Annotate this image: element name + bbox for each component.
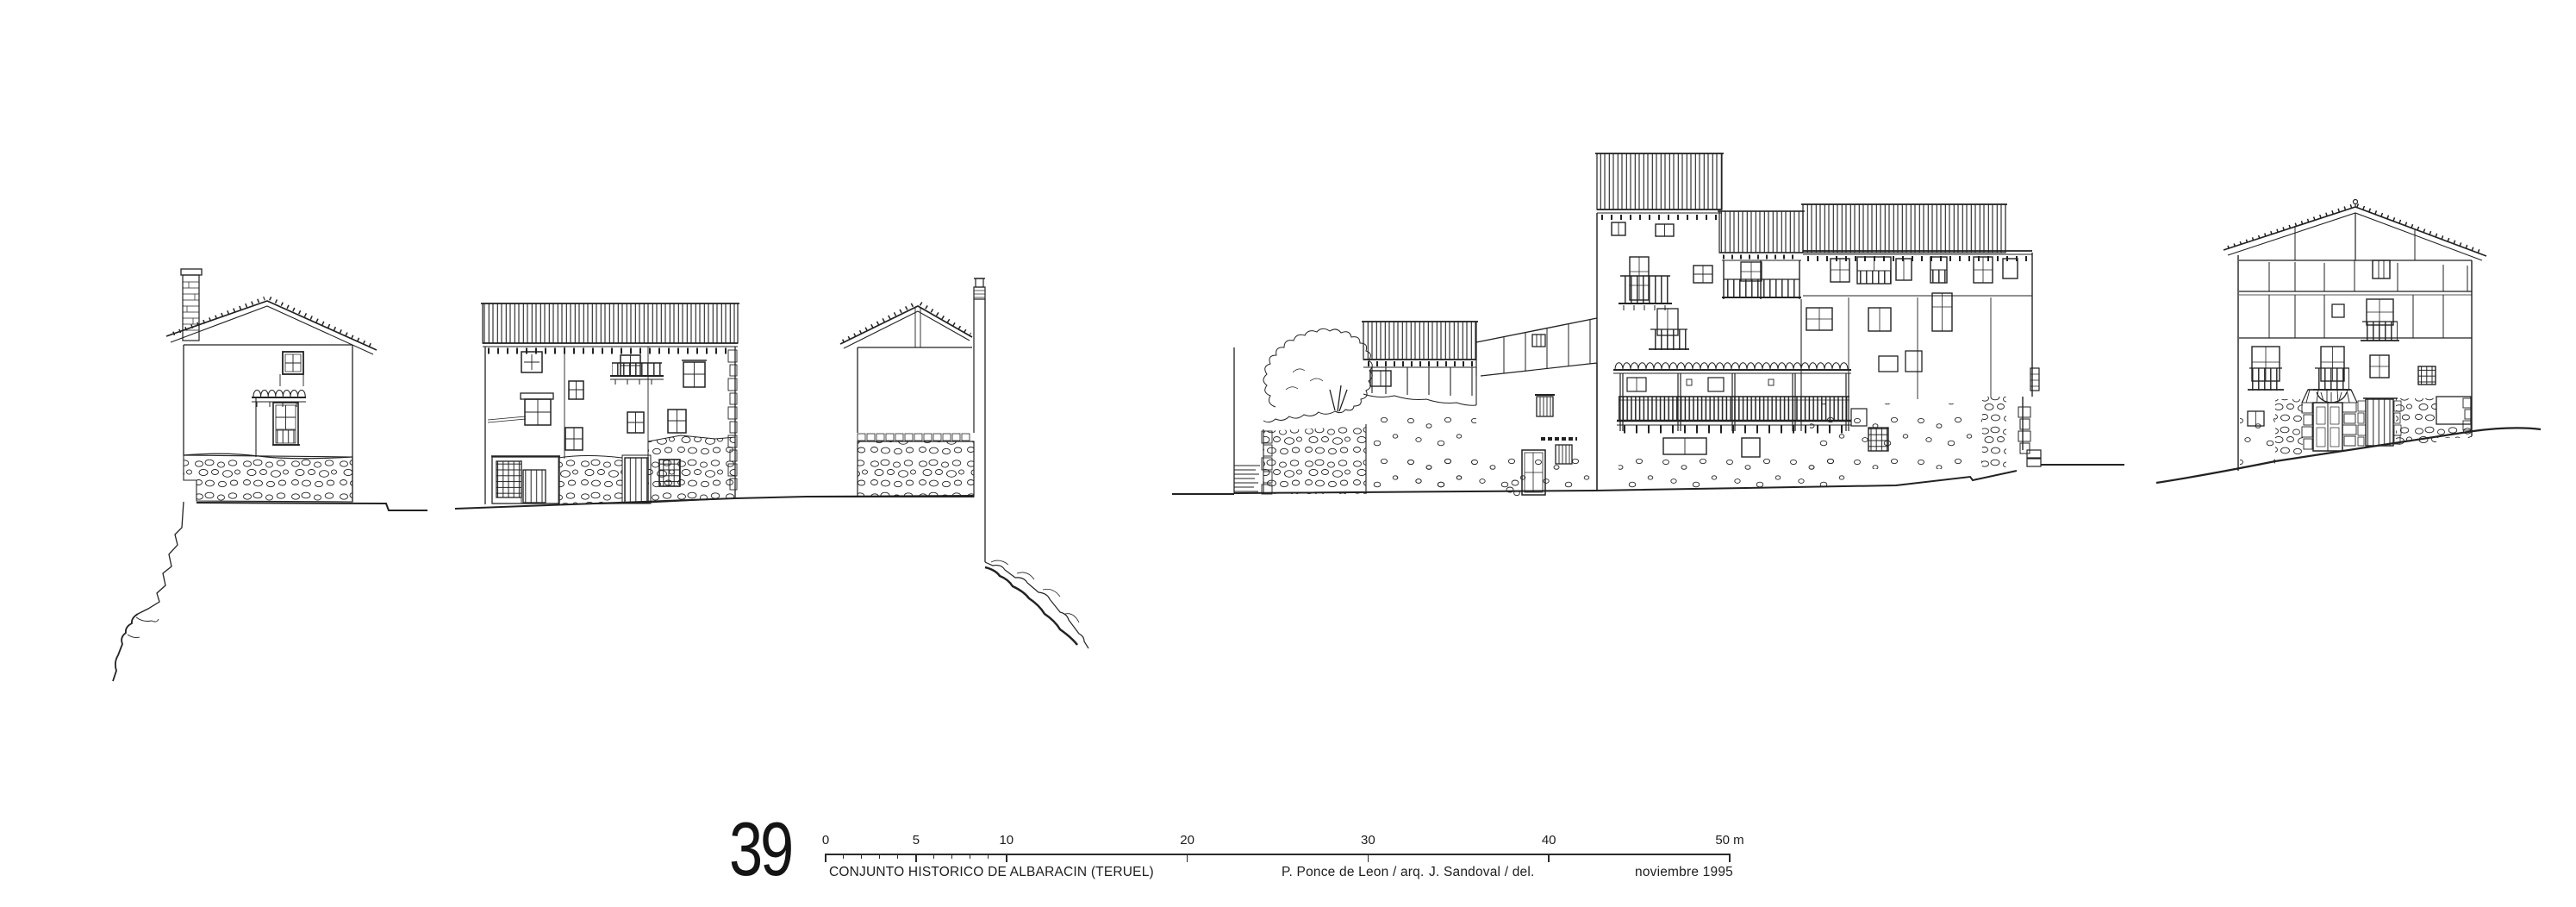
title-block: 39 051020304050 m CONJUNTO HISTORICO DE … <box>0 0 2576 907</box>
scale-major-tick <box>915 854 917 862</box>
scale-bar-line <box>826 854 1730 855</box>
scale-major-tick <box>825 854 826 862</box>
scale-minor-tick <box>951 854 952 859</box>
scale-major-tick <box>1729 854 1731 862</box>
sheet-number: 39 <box>729 811 791 887</box>
scale-minor-tick <box>897 854 898 859</box>
scale-tick-label: 50 m <box>1704 833 1756 848</box>
scale-tick-label: 10 <box>981 833 1032 848</box>
scale-tick-label: 40 <box>1523 833 1575 848</box>
scale-minor-tick <box>861 854 862 859</box>
scale-minor-tick <box>843 854 844 859</box>
scale-tick-label: 30 <box>1342 833 1394 848</box>
scale-tick-label: 0 <box>800 833 851 848</box>
scale-tick-label: 20 <box>1162 833 1213 848</box>
scale-major-tick <box>1187 854 1188 862</box>
architect-credit: P. Ponce de Leon / arq. <box>1282 865 1424 880</box>
scale-minor-tick <box>879 854 880 859</box>
project-title: CONJUNTO HISTORICO DE ALBARACIN (TERUEL) <box>829 865 1154 880</box>
scale-tick-label: 5 <box>890 833 942 848</box>
date-label: noviembre 1995 <box>1635 865 1733 880</box>
scale-minor-tick <box>970 854 970 859</box>
delineator-credit: J. Sandoval / del. <box>1429 865 1535 880</box>
scale-major-tick <box>1368 854 1369 862</box>
scale-minor-tick <box>988 854 989 859</box>
scale-major-tick <box>1548 854 1550 862</box>
scale-minor-tick <box>933 854 934 859</box>
drawing-sheet: 39 051020304050 m CONJUNTO HISTORICO DE … <box>0 0 2576 907</box>
scale-major-tick <box>1006 854 1007 862</box>
